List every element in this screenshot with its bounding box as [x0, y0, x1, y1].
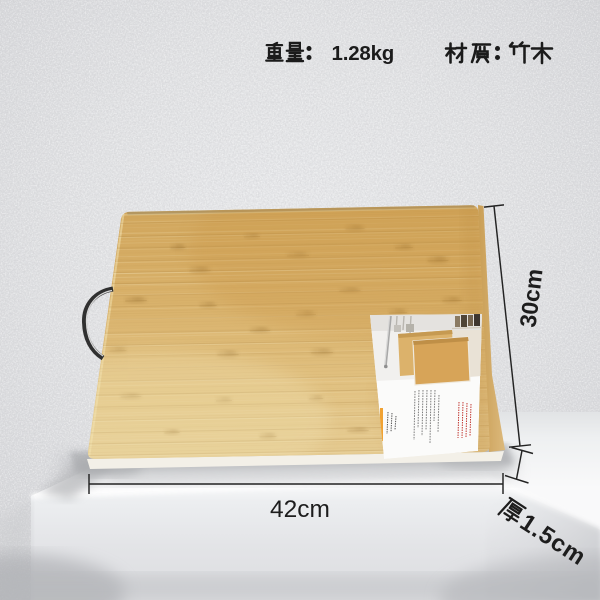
svg-text:42cm: 42cm [270, 496, 330, 523]
svg-text:1.28kg: 1.28kg [332, 42, 395, 65]
